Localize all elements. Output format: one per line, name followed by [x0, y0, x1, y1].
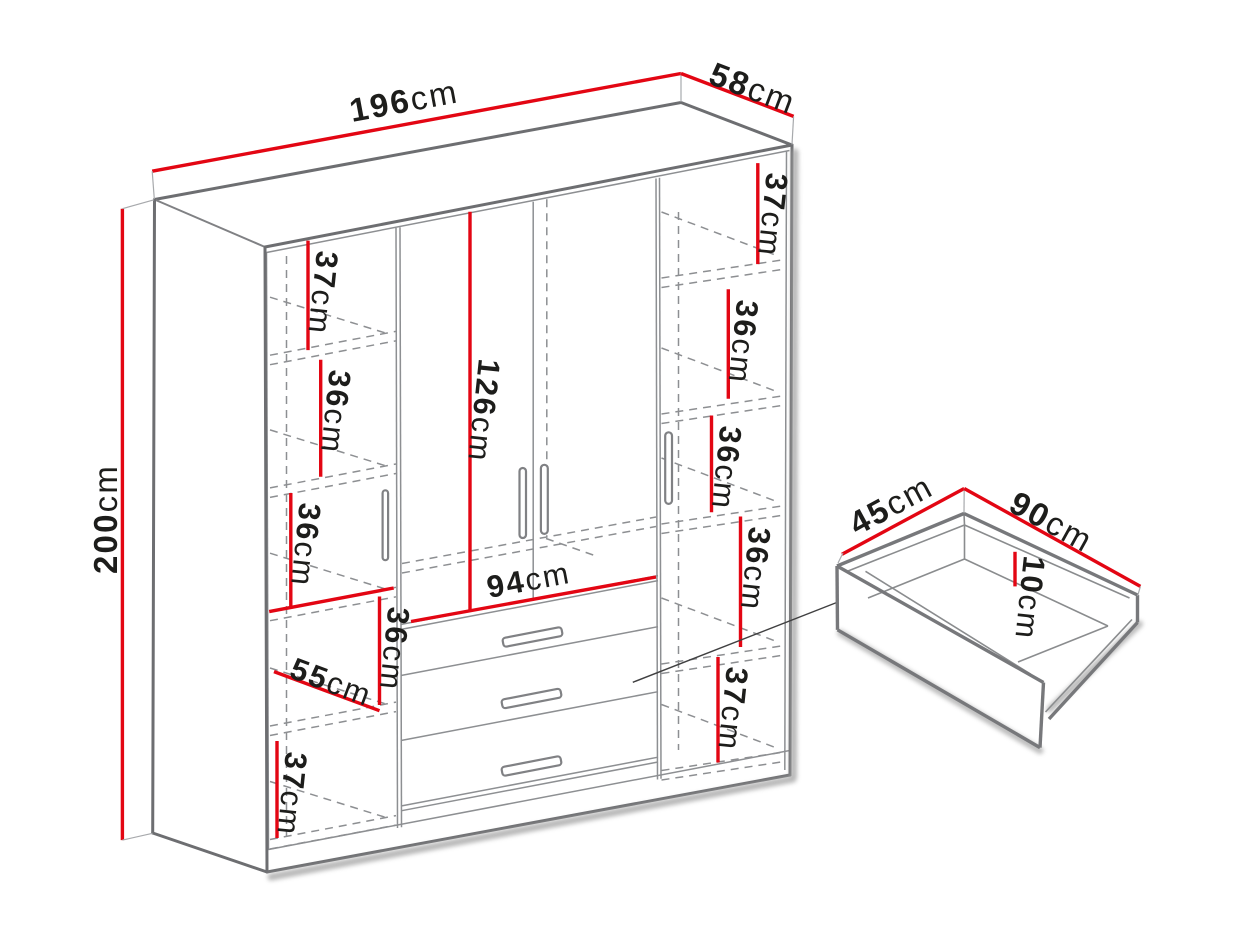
- svg-text:200cm: 200cm: [87, 464, 124, 574]
